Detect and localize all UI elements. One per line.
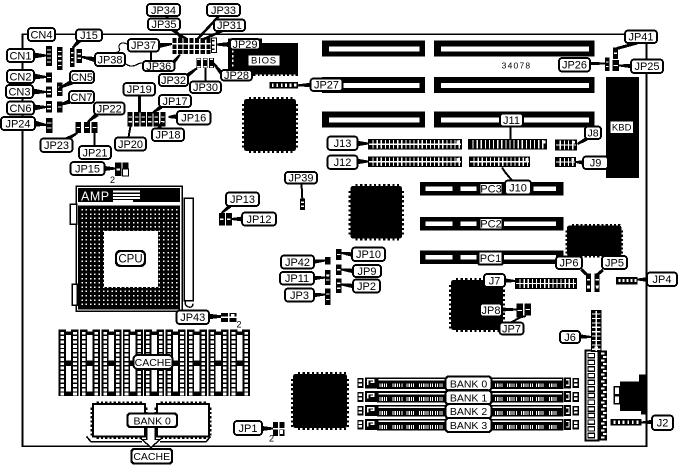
svg-text:JP42: JP42	[285, 257, 310, 269]
svg-text:JP23: JP23	[44, 140, 69, 152]
svg-text:KBD: KBD	[612, 123, 632, 134]
svg-text:PC1: PC1	[480, 253, 501, 265]
svg-text:J15: J15	[80, 30, 98, 42]
svg-text:JP32: JP32	[161, 75, 186, 87]
svg-text:BANK 0: BANK 0	[134, 415, 172, 427]
svg-text:J7: J7	[489, 275, 501, 287]
svg-text:BANK 1: BANK 1	[450, 392, 488, 404]
svg-text:JP8: JP8	[482, 305, 501, 317]
svg-text:CN6: CN6	[9, 103, 31, 115]
svg-text:JP33: JP33	[211, 5, 236, 17]
svg-text:JP9: JP9	[358, 266, 377, 278]
svg-text:CN7: CN7	[70, 92, 92, 104]
svg-text:JP26: JP26	[562, 60, 587, 72]
svg-text:2: 2	[110, 175, 115, 185]
svg-text:J13: J13	[334, 138, 352, 150]
svg-text:JP4: JP4	[653, 274, 672, 286]
svg-text:J2: J2	[657, 418, 669, 430]
svg-text:JP37: JP37	[131, 40, 156, 52]
svg-text:JP5: JP5	[605, 257, 624, 269]
svg-text:JP1: JP1	[239, 423, 258, 435]
svg-text:CACHE: CACHE	[135, 357, 172, 369]
svg-text:AMP: AMP	[81, 189, 110, 203]
svg-text:JP24: JP24	[5, 118, 30, 130]
svg-text:JP3: JP3	[290, 290, 309, 302]
svg-text:JP18: JP18	[155, 130, 180, 142]
svg-text:BANK 3: BANK 3	[450, 420, 488, 432]
svg-text:CACHE: CACHE	[133, 451, 170, 463]
svg-text:JP27: JP27	[314, 80, 339, 92]
svg-text:JP2: JP2	[357, 281, 376, 293]
svg-text:J11: J11	[503, 115, 520, 127]
svg-text:J6: J6	[564, 332, 576, 344]
svg-text:JP28: JP28	[224, 70, 249, 82]
svg-text:JP29: JP29	[232, 39, 257, 51]
svg-text:CN4: CN4	[30, 29, 52, 41]
svg-text:JP25: JP25	[634, 61, 659, 73]
svg-text:JP35: JP35	[151, 19, 176, 31]
svg-text:JP38: JP38	[97, 54, 122, 66]
svg-text:JP20: JP20	[118, 139, 143, 151]
svg-text:JP39: JP39	[288, 173, 313, 185]
svg-text:JP7: JP7	[502, 323, 521, 335]
svg-text:JP13: JP13	[230, 194, 255, 206]
svg-text:PC2: PC2	[480, 219, 501, 231]
svg-text:JP11: JP11	[285, 273, 309, 285]
svg-text:J8: J8	[587, 128, 598, 140]
svg-text:CN2: CN2	[9, 71, 31, 83]
svg-text:CN1: CN1	[9, 50, 31, 62]
svg-text:BANK 0: BANK 0	[450, 379, 488, 391]
svg-text:2: 2	[269, 434, 274, 444]
svg-text:JP12: JP12	[246, 214, 271, 226]
svg-text:J10: J10	[509, 182, 527, 194]
svg-text:JP19: JP19	[127, 84, 152, 96]
svg-text:JP30: JP30	[193, 82, 218, 94]
svg-text:JP41: JP41	[628, 32, 653, 44]
svg-text:BIOS: BIOS	[251, 56, 277, 67]
svg-text:JP21: JP21	[82, 147, 107, 159]
svg-text:CN3: CN3	[8, 86, 30, 98]
svg-text:JP43: JP43	[180, 312, 205, 324]
svg-text:JP31: JP31	[217, 20, 242, 32]
svg-text:PC3: PC3	[480, 184, 501, 196]
svg-text:JP16: JP16	[181, 113, 206, 125]
svg-text:JP6: JP6	[560, 258, 579, 270]
svg-text:JP10: JP10	[356, 249, 381, 261]
svg-text:CPU: CPU	[118, 254, 142, 266]
svg-text:J12: J12	[334, 157, 352, 169]
svg-text:34078: 34078	[502, 61, 532, 71]
svg-text:JP15: JP15	[75, 163, 100, 175]
svg-text:BANK 2: BANK 2	[450, 406, 488, 418]
svg-text:JP17: JP17	[162, 96, 187, 108]
svg-text:JP34: JP34	[151, 5, 176, 17]
svg-text:JP22: JP22	[97, 103, 122, 115]
svg-text:JP36: JP36	[146, 61, 171, 73]
svg-text:2: 2	[236, 320, 241, 330]
svg-text:CN5: CN5	[71, 72, 93, 84]
svg-text:J9: J9	[590, 158, 602, 170]
